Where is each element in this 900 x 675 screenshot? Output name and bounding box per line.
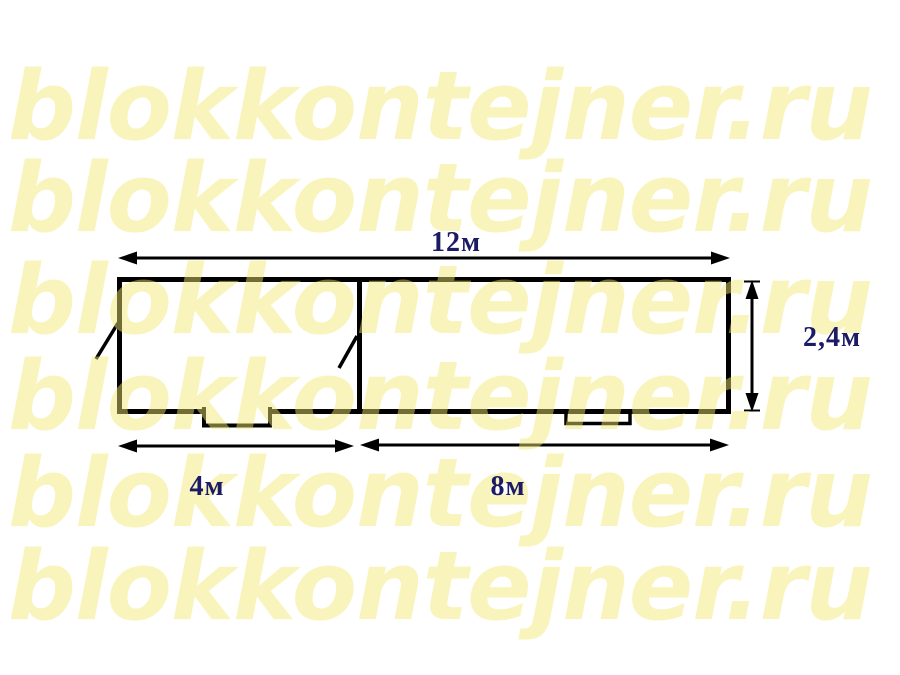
dimension-arrow-total-length	[118, 252, 730, 265]
container-outline	[120, 280, 729, 412]
arrowhead-right-icon	[335, 440, 354, 453]
arrowhead-left-icon	[118, 440, 137, 453]
left-door-opening	[204, 406, 270, 416]
dimension-arrow-right-section	[360, 439, 729, 452]
blueprint-canvas: blokkontejner.ru blokkontejner.ru blokko…	[0, 0, 900, 675]
arrowhead-left-icon	[118, 252, 137, 265]
arrowhead-right-icon	[711, 252, 730, 265]
dimension-label-container-width: 2,4м	[794, 324, 870, 352]
dimension-label-total-length: 12м	[426, 229, 486, 257]
left-wall-door-swing	[96, 323, 118, 359]
partition-door-swing	[339, 336, 357, 368]
arrowhead-left-icon	[360, 439, 379, 452]
dimension-arrow-container-width	[744, 280, 760, 412]
arrowhead-right-icon	[710, 439, 729, 452]
dimension-label-right-section: 8м	[481, 473, 535, 501]
arrowhead-up-icon	[746, 280, 759, 299]
dimension-arrow-left-section	[118, 440, 354, 453]
container-floor-plan	[0, 0, 900, 675]
arrowhead-down-icon	[746, 393, 759, 412]
dimension-label-left-section: 4м	[180, 473, 234, 501]
